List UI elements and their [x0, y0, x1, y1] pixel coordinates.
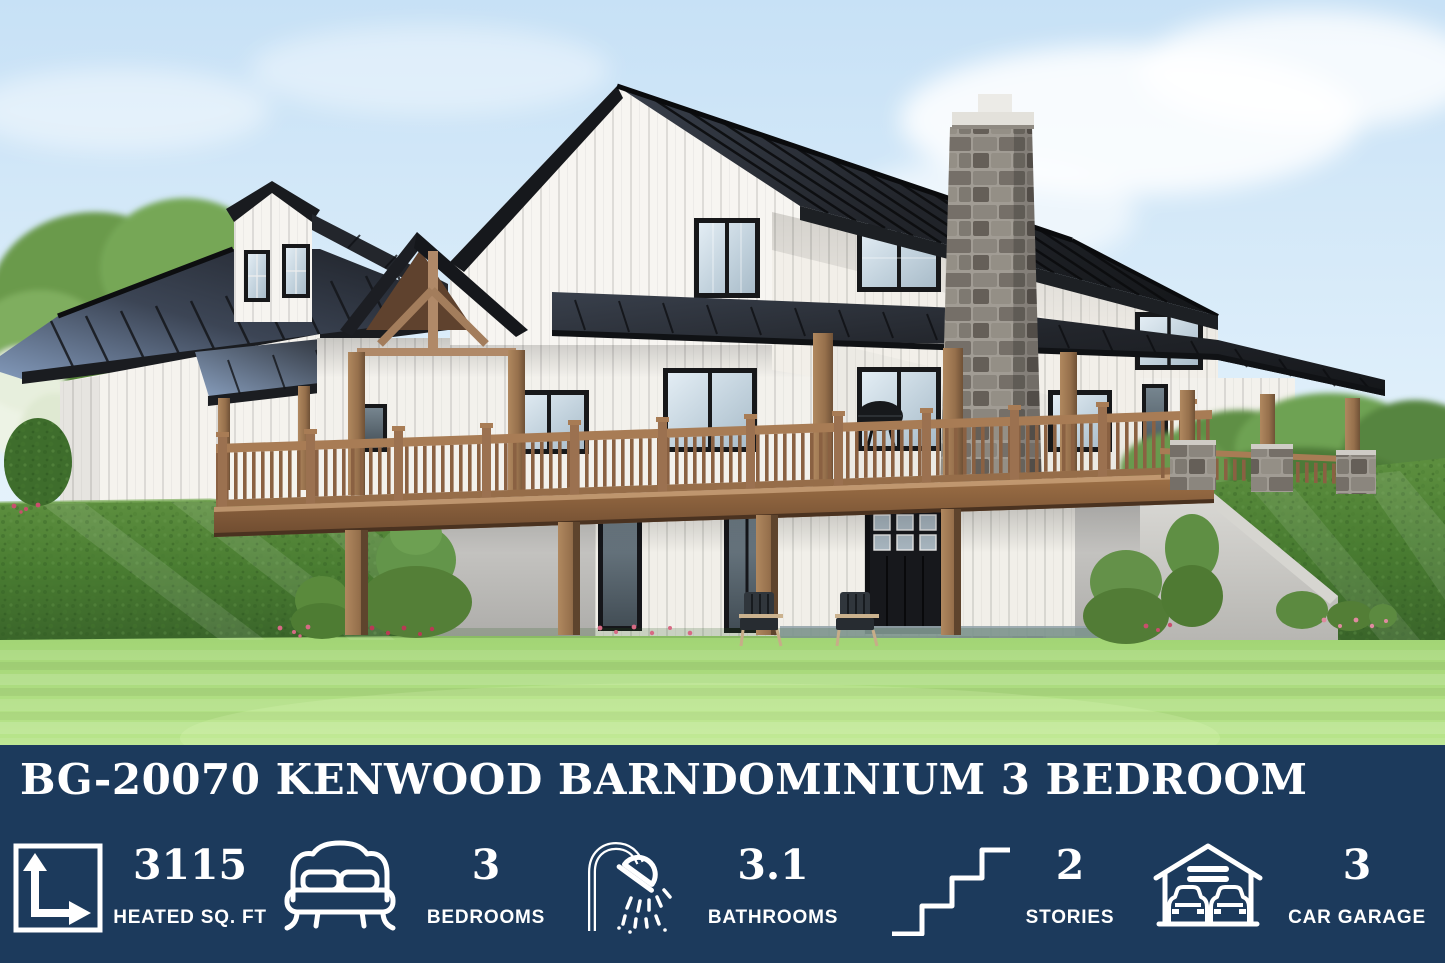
stat-value: 3115: [95, 845, 285, 886]
stat-label: CAR GARAGE: [1242, 908, 1445, 927]
stat-label: BEDROOMS: [371, 908, 601, 927]
listing-promo-image: BG-20070 KENWOOD BARNDOMINIUM 3 BEDROOM …: [0, 0, 1445, 963]
stat-value: 2: [975, 845, 1165, 886]
house-rendering: [0, 0, 1445, 745]
stat-value: 3.1: [678, 845, 868, 886]
stat-value: 3: [391, 845, 581, 886]
stat-label: HEATED SQ. FT: [75, 908, 305, 927]
stat-label: BATHROOMS: [658, 908, 888, 927]
house-rendering-svg: [0, 0, 1445, 745]
plan-title: BG-20070 KENWOOD BARNDOMINIUM 3 BEDROOM: [20, 757, 1220, 803]
promo-banner: BG-20070 KENWOOD BARNDOMINIUM 3 BEDROOM …: [0, 745, 1445, 963]
stat-label: STORIES: [955, 908, 1185, 927]
gable-window: [694, 218, 760, 298]
stat-value: 3: [1262, 845, 1445, 886]
